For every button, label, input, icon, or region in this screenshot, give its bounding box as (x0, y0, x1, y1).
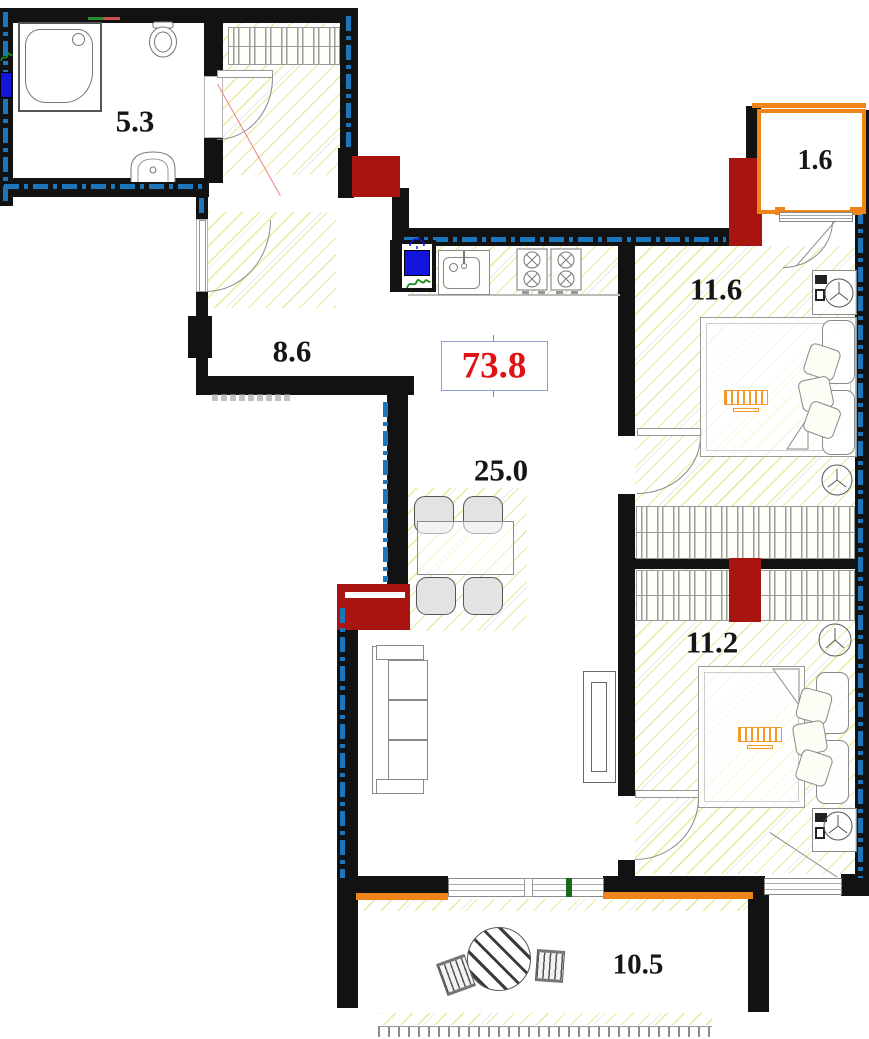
chandelier-base (747, 745, 773, 749)
wall-segment (748, 893, 769, 1012)
terrace-pillar (330, 1002, 377, 1038)
chandelier-base (733, 408, 759, 412)
area-label-terrace: 10.5 (613, 951, 664, 980)
umbrella-icon (408, 238, 426, 249)
wall-segment (387, 378, 408, 590)
area-label-bathroom: 5.3 (116, 106, 155, 137)
insulation-line (340, 608, 345, 878)
wall-segment (196, 376, 414, 395)
kitchen-faucet-dot (461, 263, 467, 269)
insulation-line (346, 16, 351, 150)
window-divider (524, 878, 533, 897)
kitchen-sink-bowl (443, 257, 480, 289)
vent-shaft-slot (345, 592, 405, 598)
wall-segment (841, 874, 869, 896)
wardrobe-bedroom-top (636, 506, 855, 559)
bedroom-bottom-door-panel (635, 790, 699, 798)
chandelier-icon (724, 390, 768, 405)
greenery-icon (0, 50, 13, 64)
insulation-line (199, 198, 204, 214)
tick-mark (493, 391, 494, 397)
desk-chair-icon (823, 277, 855, 309)
desk-chair-icon (822, 810, 854, 842)
wall-segment (204, 8, 223, 76)
entrance-door-panel (199, 220, 206, 292)
insulation-line (4, 184, 204, 189)
area-label-bedroom-bottom: 11.2 (686, 627, 739, 658)
balcony-slab-line (752, 103, 866, 108)
sofa-armrest (376, 779, 424, 794)
bathroom-door-panel (217, 70, 273, 78)
sofa-cushion (388, 660, 428, 700)
wall-accent-red (104, 17, 120, 20)
terrace-slab-line (356, 893, 448, 900)
dining-chair (463, 577, 503, 615)
window-green-post (566, 878, 572, 897)
dining-chair (416, 577, 456, 615)
wall-segment (618, 244, 635, 436)
terrace-slab-line (603, 892, 753, 899)
sofa-back (372, 646, 389, 794)
wall-segment (204, 138, 223, 183)
washbasin-icon (128, 149, 178, 182)
bedroom-top-door-panel (637, 428, 702, 436)
stove-icon (516, 248, 582, 294)
terrace-railing (378, 1026, 712, 1037)
floor-hatch-terrace-top (358, 899, 748, 911)
tv-screen (591, 682, 607, 772)
area-label-bedroom-top: 11.6 (690, 274, 743, 305)
insulation-line (858, 122, 863, 878)
shower-drain (72, 33, 85, 46)
wall-segment (337, 890, 358, 1008)
terrace-chair (535, 949, 565, 983)
vent-shaft (352, 156, 400, 197)
bedroom-window (764, 878, 842, 895)
tick-mark (493, 335, 494, 341)
sofa-armrest (376, 645, 424, 660)
stool-icon (817, 622, 853, 658)
vent-shaft (729, 558, 761, 622)
fridge-icon (404, 250, 430, 276)
wall-segment (618, 494, 635, 796)
area-label-balcony: 1.6 (798, 147, 833, 175)
chandelier-icon (738, 727, 782, 742)
insulation-line (3, 12, 8, 202)
wardrobe-entry (228, 27, 340, 65)
dining-table (417, 521, 514, 575)
sofa-cushion (388, 740, 428, 780)
terrace-pillar (712, 1007, 757, 1038)
terrace-table (467, 927, 531, 991)
insulation-line (383, 402, 388, 582)
wall-accent-green (88, 17, 104, 20)
tiny-annotation (212, 394, 290, 401)
bed-fold (772, 668, 800, 706)
boiler-icon (0, 72, 12, 98)
insulation-line (404, 237, 726, 242)
sofa-cushion (388, 700, 428, 740)
area-label-hallway: 8.6 (273, 336, 312, 367)
greenery-icon (405, 276, 431, 291)
area-label-living-kitchen: 25.0 (474, 455, 528, 486)
kitchen-sink-drain (449, 263, 458, 272)
toilet-icon (146, 21, 180, 59)
total-area-label: 73.8 (462, 348, 527, 385)
vent-shaft (337, 584, 410, 630)
stool-icon (820, 463, 854, 497)
floor-plan: 73.8 (0, 0, 869, 1039)
floor-hatch-terrace-bottom (378, 1013, 712, 1025)
kitchen-faucet-icon (463, 251, 465, 263)
